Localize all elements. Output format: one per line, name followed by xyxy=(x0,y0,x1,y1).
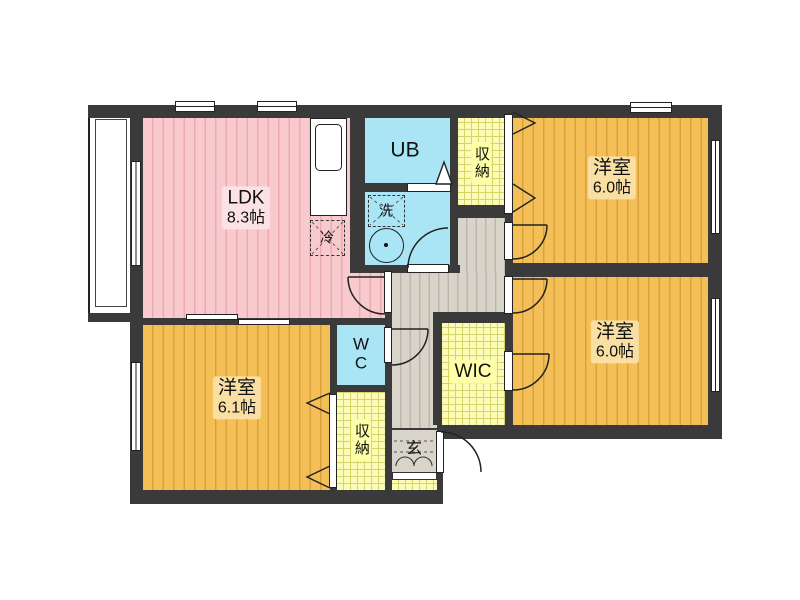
room-name: LDK xyxy=(227,187,265,209)
washer-label: 洗 xyxy=(379,203,393,220)
wall xyxy=(350,105,365,265)
wall xyxy=(433,312,442,425)
door-opening xyxy=(407,183,451,192)
balcony xyxy=(88,112,130,314)
window xyxy=(131,362,141,451)
wall xyxy=(433,312,513,323)
ldk-label: LDK 8.3帖 xyxy=(222,186,270,229)
room-size: 6.1帖 xyxy=(218,400,256,419)
door-opening xyxy=(384,271,392,313)
bedroom-sw-label: 洋室 6.1帖 xyxy=(213,376,261,419)
room-size: 6.0帖 xyxy=(596,344,634,363)
wall xyxy=(443,425,722,439)
bedroom-ne-label: 洋室 6.0帖 xyxy=(588,156,636,199)
window xyxy=(175,101,215,112)
closet-door xyxy=(329,394,337,488)
fridge-label: 冷 xyxy=(320,230,334,247)
wall xyxy=(330,385,392,392)
closet-south-label: 収納 xyxy=(351,419,371,461)
sliding-door-panel xyxy=(238,319,290,325)
door-opening xyxy=(504,276,513,314)
window xyxy=(257,101,297,112)
wall xyxy=(505,263,722,277)
kitchen-sink xyxy=(315,124,342,171)
closet-north-label: 収納 xyxy=(471,142,491,184)
room-size: 8.3帖 xyxy=(227,210,265,229)
door-opening xyxy=(504,114,513,214)
bedroom-e-label: 洋室 6.0帖 xyxy=(591,320,639,363)
room-size: 6.0帖 xyxy=(593,180,631,199)
room-name: 洋室 xyxy=(218,377,256,399)
entrance-door-leaf xyxy=(436,431,444,473)
entrance-step xyxy=(392,472,437,480)
hallway-arm xyxy=(458,218,505,274)
wall xyxy=(450,105,458,273)
window xyxy=(711,298,720,392)
wall xyxy=(437,471,443,490)
floor-plan: LDK 8.3帖 洋室 6.0帖 洋室 6.0帖 洋室 6.1帖 UB W C … xyxy=(0,0,800,600)
entrance-label: 玄 xyxy=(406,441,422,460)
room-name: 洋室 xyxy=(596,321,634,343)
toilet-label-line2: C xyxy=(353,354,369,373)
door-opening xyxy=(504,222,513,260)
room-ldk-nook xyxy=(350,272,385,318)
balcony-floor-outline xyxy=(95,119,127,307)
door-opening xyxy=(407,264,449,273)
room-name: 洋室 xyxy=(593,157,631,179)
wall xyxy=(88,313,130,322)
toilet-label: W C xyxy=(353,335,369,372)
sliding-door-panel xyxy=(186,314,238,320)
unit-bath-label: UB xyxy=(390,139,419,164)
toilet-label-line1: W xyxy=(353,335,369,354)
wic-label: WIC xyxy=(450,360,497,384)
balcony-sliding-door xyxy=(131,161,141,266)
window xyxy=(630,102,672,113)
wall xyxy=(130,490,443,504)
basin-faucet xyxy=(384,243,388,247)
door-opening xyxy=(384,327,392,363)
window xyxy=(711,140,720,234)
door-opening xyxy=(504,351,513,391)
entrance-porch xyxy=(392,480,437,490)
